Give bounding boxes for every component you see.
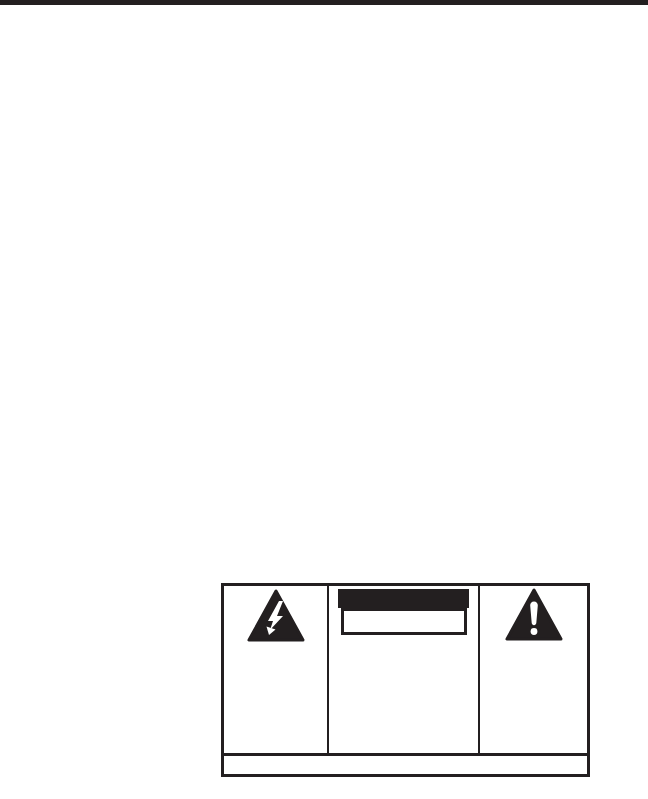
manual-page — [0, 0, 648, 799]
caution-title-bar — [338, 589, 469, 608]
warning-main-row — [224, 586, 587, 753]
safety-warning-box — [221, 583, 590, 777]
high-voltage-cell — [224, 586, 327, 753]
caution-text-box — [341, 608, 467, 635]
caution-label-cell — [329, 586, 478, 753]
page-top-rule — [0, 0, 648, 5]
warning-footer-strip — [224, 756, 587, 774]
high-voltage-lightning-triangle-icon — [247, 589, 305, 642]
alert-cell — [480, 586, 587, 753]
alert-exclamation-triangle-icon — [505, 588, 563, 641]
